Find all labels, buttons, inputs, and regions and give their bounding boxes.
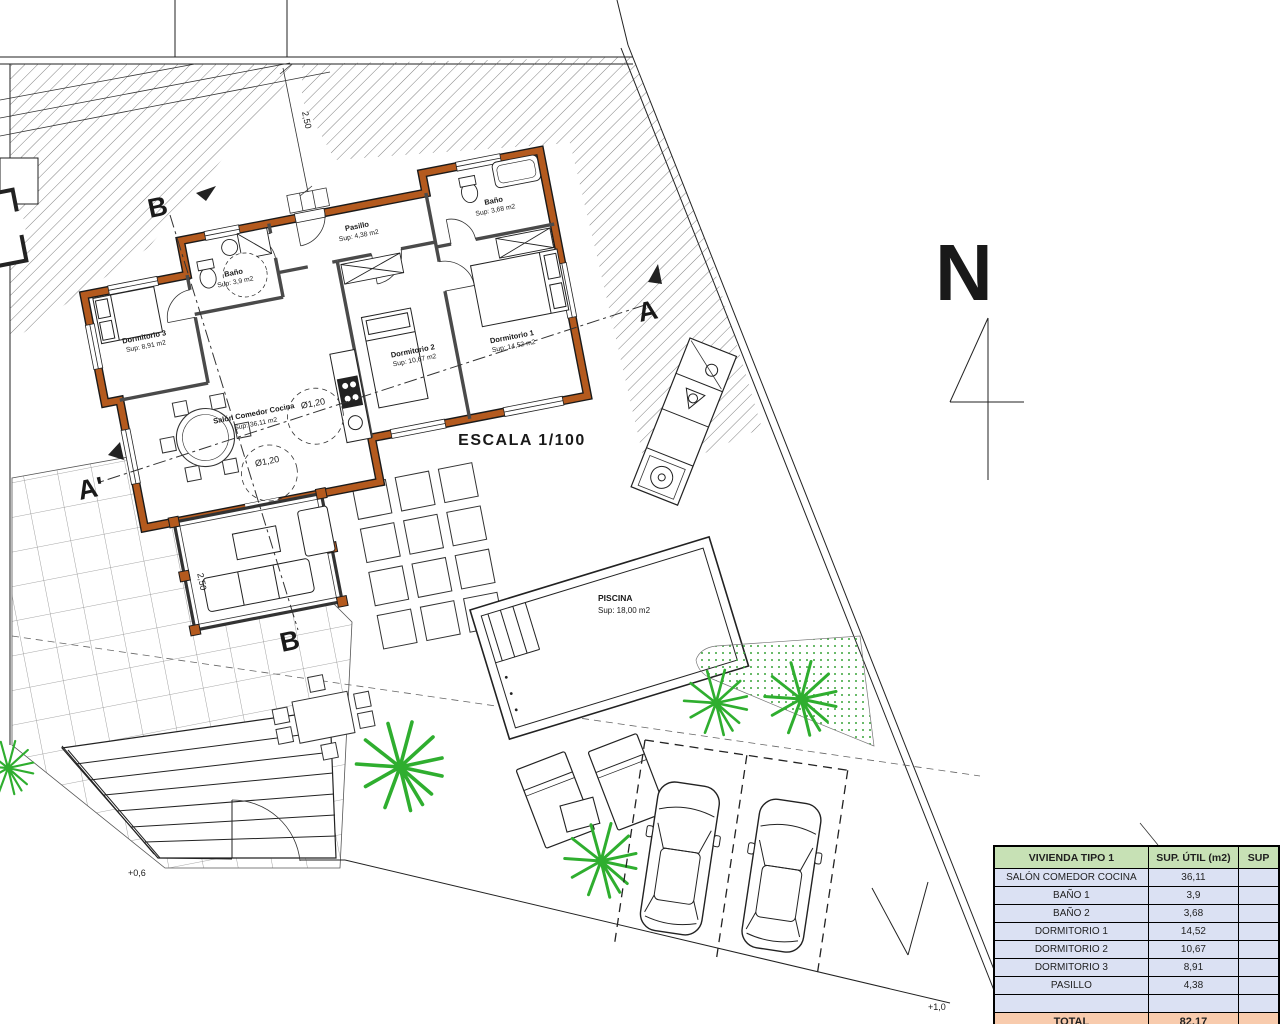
row-pasillo-value: 4,38 — [1148, 977, 1238, 995]
table-total-row: TOTAL 82,17 — [994, 1013, 1279, 1024]
table-header-vivienda: VIVIENDA TIPO 1 — [994, 846, 1148, 869]
row-bano2-value: 3,68 — [1148, 905, 1238, 923]
section-arrow-a-prime — [108, 442, 124, 460]
row-salon-value: 36,11 — [1148, 869, 1238, 887]
floor-plan-page: Ø1,20 Ø1,20 2,50 Traster — [0, 0, 1280, 1024]
row-empty-name — [994, 995, 1148, 1013]
row-dorm2-extra — [1239, 941, 1279, 959]
row-bano1-extra — [1239, 887, 1279, 905]
row-bano1-value: 3,9 — [1148, 887, 1238, 905]
scale-label: ESCALA 1/100 — [458, 432, 586, 449]
row-dorm2-name: DORMITORIO 2 — [994, 941, 1148, 959]
row-empty-extra — [1239, 995, 1279, 1013]
pool-area: Sup: 18,00 m2 — [598, 606, 651, 615]
total-extra — [1239, 1013, 1279, 1024]
table-row: DORMITORIO 3 8,91 — [994, 959, 1279, 977]
row-dorm1-value: 14,52 — [1148, 923, 1238, 941]
row-pasillo-extra — [1239, 977, 1279, 995]
table-header-row: VIVIENDA TIPO 1 SUP. ÚTIL (m2) SUP — [994, 846, 1279, 869]
row-pasillo-name: PASILLO — [994, 977, 1148, 995]
table-header-sup-cut: SUP — [1239, 846, 1279, 869]
table-row: BAÑO 1 3,9 — [994, 887, 1279, 905]
table-row-empty — [994, 995, 1279, 1013]
row-bano2-extra — [1239, 905, 1279, 923]
level-right: +1,0 — [928, 1002, 946, 1012]
row-bano2-name: BAÑO 2 — [994, 905, 1148, 923]
table-row: DORMITORIO 2 10,67 — [994, 941, 1279, 959]
row-salon-extra — [1239, 869, 1279, 887]
table-header-sup-util: SUP. ÚTIL (m2) — [1148, 846, 1238, 869]
table-row: BAÑO 2 3,68 — [994, 905, 1279, 923]
row-dorm3-name: DORMITORIO 3 — [994, 959, 1148, 977]
total-label: TOTAL — [994, 1013, 1148, 1024]
row-salon-name: SALÓN COMEDOR COCINA — [994, 869, 1148, 887]
row-bano1-name: BAÑO 1 — [994, 887, 1148, 905]
table-row: SALÓN COMEDOR COCINA 36,11 — [994, 869, 1279, 887]
row-dorm3-extra — [1239, 959, 1279, 977]
car-2 — [734, 796, 829, 955]
row-dorm3-value: 8,91 — [1148, 959, 1238, 977]
total-value: 82,17 — [1148, 1013, 1238, 1024]
palm-tree-1 — [357, 722, 443, 811]
row-dorm1-name: DORMITORIO 1 — [994, 923, 1148, 941]
level-left: +0,6 — [128, 868, 146, 878]
row-dorm2-value: 10,67 — [1148, 941, 1238, 959]
row-empty-value — [1148, 995, 1238, 1013]
table-row: PASILLO 4,38 — [994, 977, 1279, 995]
north-letter: N — [935, 228, 993, 317]
row-dorm1-extra — [1239, 923, 1279, 941]
section-arrow-b — [196, 186, 216, 201]
table-row: DORMITORIO 1 14,52 — [994, 923, 1279, 941]
north-compass: N — [935, 228, 1024, 480]
area-schedule-table: VIVIENDA TIPO 1 SUP. ÚTIL (m2) SUP SALÓN… — [993, 845, 1280, 1024]
pool-label: PISCINA — [598, 593, 632, 603]
table-leader-line — [1140, 823, 1158, 845]
